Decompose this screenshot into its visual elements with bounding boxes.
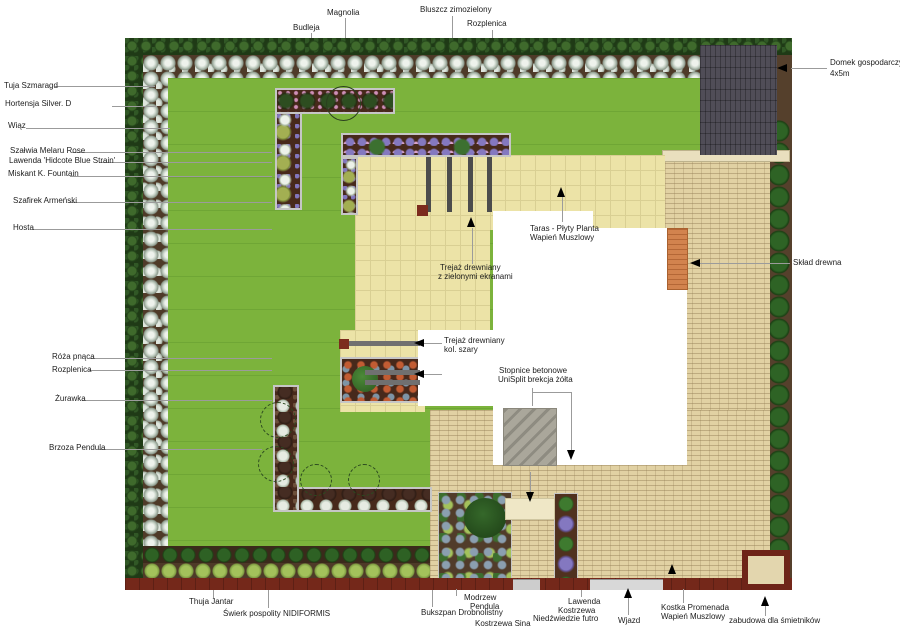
birch-tree-symbol xyxy=(258,446,294,482)
label-roza: Róża pnąca xyxy=(52,352,95,361)
hedge-top xyxy=(125,38,792,55)
label-taras-1: Taras - Płyty Planta xyxy=(530,224,599,233)
birch-tree-symbol xyxy=(260,402,296,438)
label-kostka-1: Kostka Promenada xyxy=(661,603,729,612)
trellis-gray-beam xyxy=(365,380,420,385)
label-trejaz-zielony-2: z zielonymi ekranami xyxy=(438,272,513,281)
leader-rozplenica-left xyxy=(89,370,272,371)
garden-plan-page: Budleja Magnolia Bluszcz zimozielony Roz… xyxy=(0,0,900,635)
trellis-gray-beam xyxy=(365,370,420,375)
leader-trejaz-szary-1 xyxy=(424,343,442,344)
label-lawenda-hidcote: Lawenda 'Hidcote Blue Strain' xyxy=(9,156,115,165)
label-hortensja: Hortensja Silver. D xyxy=(5,99,71,108)
thuja-jantar-row xyxy=(143,546,458,563)
leader-kostka xyxy=(683,589,684,603)
bed-terrace-west xyxy=(341,157,358,215)
label-szafirek: Szafirek Armeński xyxy=(13,196,77,205)
label-zurawka: Żurawka xyxy=(55,394,86,403)
label-hosta: Hosta xyxy=(13,223,34,232)
leader-zabudowa xyxy=(765,606,766,616)
leader-roza xyxy=(90,358,272,359)
leader-bluszcz xyxy=(452,16,453,38)
leader-wjazd xyxy=(628,598,629,615)
bed-entrance-strip xyxy=(554,493,578,579)
arrow-stopnice-2 xyxy=(526,492,534,502)
swierk-row xyxy=(143,563,460,578)
leader-miskant xyxy=(70,176,272,177)
front-wall xyxy=(125,578,792,590)
label-taras-2: Wapień Muszlowy xyxy=(530,233,594,242)
bed-terrace-north xyxy=(341,133,511,157)
birch-tree-symbol xyxy=(348,464,380,496)
trellis-green-anchor xyxy=(417,205,428,216)
leader-zurawka xyxy=(82,400,272,401)
label-rozplenica-top: Rozplenica xyxy=(467,19,507,28)
label-modrzew-1: Modrzew xyxy=(464,593,496,602)
pedestrian-gate xyxy=(513,579,540,590)
leader-lawenda-b xyxy=(581,590,582,597)
arrow-sklad xyxy=(690,259,700,267)
arrow-trejaz-szary-1 xyxy=(414,339,424,347)
orange-steps xyxy=(667,228,688,290)
label-rozplenica-left: Rozplenica xyxy=(52,365,92,374)
label-bluszcz: Bluszcz zimozielony xyxy=(420,5,492,14)
label-kostrzewa-sina: Kostrzewa Sina xyxy=(475,619,531,628)
leader-hortensja xyxy=(112,106,157,107)
trellis-gray-anchor xyxy=(339,339,349,349)
label-szalwia: Szałwia Melaru Rose xyxy=(10,146,85,155)
label-budleja: Budleja xyxy=(293,23,320,32)
leader-wiaz xyxy=(26,128,170,129)
leader-stopnice-h xyxy=(532,392,571,393)
label-lawenda-bottom: Lawenda xyxy=(568,597,600,606)
arrow-driveway-paving xyxy=(668,564,676,574)
concrete-steps xyxy=(503,408,557,466)
leader-sklad xyxy=(700,263,790,264)
label-bukszpan: Bukszpan Drobnolistny xyxy=(421,608,503,617)
leader-stopnice-v3 xyxy=(530,472,531,492)
arrow-domek xyxy=(777,64,787,72)
shrub-border-left xyxy=(143,55,169,560)
arrow-zabudowa xyxy=(761,596,769,606)
trellis-gray-beam xyxy=(347,341,420,346)
label-trejaz-szary-1: Trejaż drewniany xyxy=(444,336,505,345)
label-trejaz-szary-2: kol. szary xyxy=(444,345,478,354)
label-miskant: Miskant K. Fountain xyxy=(8,169,79,178)
birch-tree-symbol xyxy=(300,464,332,496)
label-domek-2: 4x5m xyxy=(830,69,850,78)
leader-rozplenica-top xyxy=(492,30,493,38)
leader-trejaz-szary-2 xyxy=(424,374,442,375)
label-wjazd: Wjazd xyxy=(618,616,640,625)
label-stopnice-1: Stopnice betonowe xyxy=(499,366,567,375)
arrow-stopnice-1 xyxy=(567,450,575,460)
arrow-trejaz-zielony xyxy=(467,217,475,227)
label-domek-1: Domek gospodarczy xyxy=(830,58,900,67)
leader-domek xyxy=(791,68,827,69)
label-sklad: Skład drewna xyxy=(793,258,841,267)
leader-taras xyxy=(562,196,563,222)
leader-trejaz-zielony xyxy=(472,228,473,264)
shrub-border-top xyxy=(143,55,702,79)
leader-swierk xyxy=(268,590,269,608)
leader-modrzew xyxy=(456,589,457,596)
arrow-taras xyxy=(557,187,565,197)
magnolia-tree-symbol xyxy=(326,86,361,121)
label-trejaz-zielony-1: Trejaż drewniany xyxy=(440,263,501,272)
label-magnolia: Magnolia xyxy=(327,8,359,17)
label-stopnice-2: UniSplit brekcja żółta xyxy=(498,375,573,384)
label-brzoza: Brzoza Pendula xyxy=(49,443,105,452)
label-kostrzewa-nf-2: Niedźwiedzie futro xyxy=(533,614,598,623)
modrzew-pendula-shrub xyxy=(464,498,506,538)
garden-shed xyxy=(700,45,777,155)
leader-hosta xyxy=(32,229,272,230)
leader-brzoza xyxy=(99,449,262,450)
leader-stopnice-v1 xyxy=(532,388,533,406)
leader-stopnice-v2 xyxy=(571,392,572,450)
bin-enclosure xyxy=(742,550,790,590)
label-thuja-jantar: Thuja Jantar xyxy=(189,597,233,606)
leader-szalwia xyxy=(72,152,272,153)
leader-szafirek xyxy=(69,202,272,203)
leader-magnolia xyxy=(345,18,346,38)
bed-top-L-vertical xyxy=(275,112,302,210)
leader-budleja xyxy=(311,33,312,38)
right-hedge-wood-storage xyxy=(768,120,790,550)
leader-tuja xyxy=(55,86,155,87)
hedge-left xyxy=(125,38,143,578)
label-swierk: Świerk pospolity NIDIFORMIS xyxy=(223,609,330,618)
arrow-trejaz-szary-2 xyxy=(414,370,424,378)
leader-bukszpan xyxy=(432,590,433,607)
arrow-wjazd xyxy=(624,588,632,598)
label-zabudowa: zabudowa dla śmietników xyxy=(729,616,820,625)
label-kostka-2: Wapień Muszlowy xyxy=(661,612,725,621)
leader-lawenda-h xyxy=(99,162,272,163)
label-tuja: Tuja Szmaragd xyxy=(4,81,58,90)
label-wiaz: Wiąz xyxy=(8,121,26,130)
